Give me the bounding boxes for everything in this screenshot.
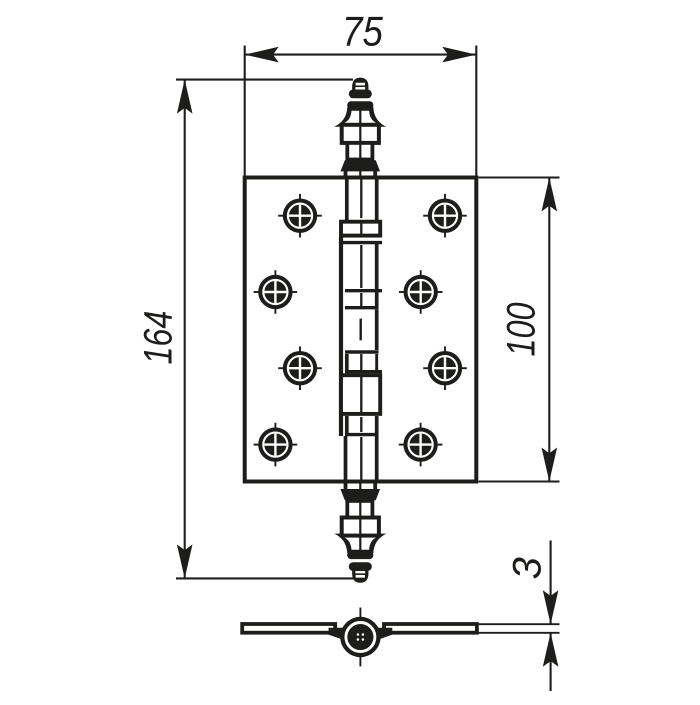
svg-text:3: 3 [506, 557, 550, 579]
svg-text:75: 75 [342, 8, 383, 55]
svg-text:164: 164 [137, 311, 181, 365]
svg-text:100: 100 [500, 303, 544, 357]
